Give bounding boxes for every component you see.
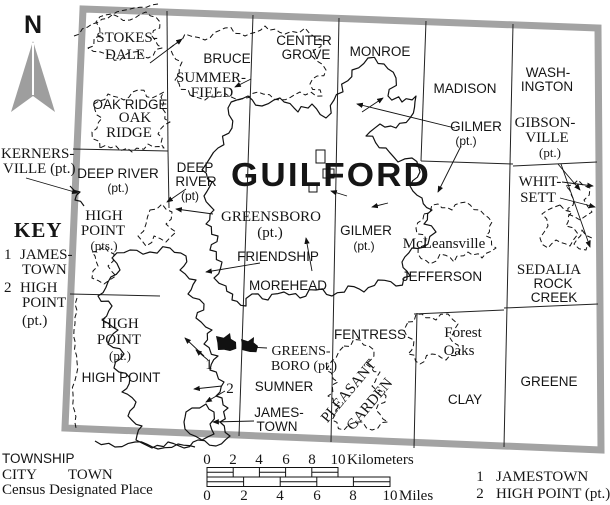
- label-kernersville-2: VILLE (pt.): [3, 161, 75, 177]
- mi-tick-6: 6: [313, 488, 321, 504]
- north-arrow-right-half: [33, 41, 55, 112]
- label-forest-oaks-2: Oaks: [444, 343, 475, 359]
- km-tick-4: 4: [255, 452, 263, 468]
- numbered-key-2-label: HIGH POINT (pt.): [496, 486, 610, 502]
- legend-symbol-types: TOWNSHIP CITY TOWN Census Designated Pla…: [2, 451, 153, 498]
- key-item1-line2: TOWN: [22, 262, 67, 278]
- label-stokesdale-2: DALE: [105, 47, 145, 63]
- label-whitsett-1: WHIT-: [519, 174, 562, 190]
- key-panel: KEY 1 JAMES- TOWN 2 HIGH POINT (pt.): [4, 218, 73, 329]
- label-deep-river-w-2: (pt.): [107, 181, 128, 195]
- label-summerfield-1: SUMMER-: [176, 70, 246, 86]
- label-marker-1: 1: [205, 357, 213, 373]
- label-friendship-township: FRIENDSHIP: [237, 249, 319, 264]
- label-deep-river-c-2: RIVER: [175, 174, 217, 189]
- key-item2-line1: HIGH: [20, 280, 58, 296]
- label-gilmer-c-1: GILMER: [340, 223, 392, 238]
- label-jamestown-township-2: TOWN: [257, 419, 298, 434]
- label-high-point-pt-2: POINT: [97, 332, 141, 348]
- label-gibsonville-2: VILLE: [525, 130, 568, 146]
- legend-town: TOWN: [68, 467, 113, 483]
- km-tick-0: 0: [203, 452, 211, 468]
- label-gilmer-ne-1: GILMER: [450, 119, 502, 134]
- label-gibsonville-3: (pt.): [539, 145, 561, 160]
- label-gilmer-c-2: (pt.): [353, 239, 374, 253]
- label-fentress-township: FENTRESS: [334, 327, 406, 342]
- north-arrow: N: [11, 11, 55, 112]
- county-name-watermark: GUILFORD: [231, 156, 431, 193]
- label-high-point-pts-1: HIGH: [85, 208, 123, 224]
- label-greensboro-small-2: BORO (pt.): [271, 359, 337, 374]
- label-high-point-pt-1: HIGH: [101, 316, 139, 332]
- numbered-key-1-label: JAMESTOWN: [496, 469, 588, 485]
- label-rock-creek-township-1: ROCK: [533, 276, 572, 291]
- label-madison-township: MADISON: [433, 81, 496, 96]
- label-clay-township: CLAY: [448, 392, 482, 407]
- label-deep-river-w-1: DEEP RIVER: [77, 166, 159, 181]
- label-deep-river-c-3: (pt): [181, 189, 199, 203]
- label-center-grove-township-1: CENTER: [276, 33, 332, 48]
- label-washington-township-1: WASH-: [526, 65, 571, 80]
- legend-cdp: Census Designated Place: [2, 482, 153, 498]
- mi-tick-0: 0: [203, 488, 211, 504]
- label-washington-township-2: INGTON: [521, 79, 573, 94]
- north-label: N: [24, 11, 42, 39]
- numbered-key: 1 JAMESTOWN 2 HIGH POINT (pt.): [476, 469, 610, 502]
- mi-tick-2: 2: [240, 488, 248, 504]
- label-oak-ridge-town-1: OAK: [119, 110, 152, 126]
- label-greene-township: GREENE: [520, 374, 577, 389]
- km-tick-10: 10: [331, 452, 346, 468]
- key-item2-line2: POINT: [22, 295, 66, 311]
- label-greensboro-small-1: GREENS-: [271, 344, 330, 359]
- label-whitsett-2: SETT: [520, 190, 556, 206]
- numbered-key-1-num: 1: [476, 469, 484, 485]
- label-center-grove-township-2: GROVE: [282, 47, 331, 62]
- label-greensboro-pt-2: (pt.): [257, 225, 282, 241]
- key-title: KEY: [14, 218, 63, 242]
- label-gilmer-ne-2: (pt.): [455, 134, 476, 148]
- label-morehead-township: MOREHEAD: [249, 278, 327, 293]
- label-jamestown-township-1: JAMES-: [254, 405, 304, 420]
- key-item2-line3: (pt.): [22, 313, 47, 329]
- km-tick-8: 8: [308, 452, 316, 468]
- key-item2-number: 2: [4, 280, 12, 296]
- label-monroe-township: MONROE: [350, 44, 411, 59]
- label-sedalia: SEDALIA: [517, 262, 581, 278]
- km-unit: Kilometers: [347, 452, 414, 468]
- legend-township: TOWNSHIP: [2, 451, 75, 466]
- scale-bar: 0 2 4 6 8 10 Kilometers 0 2 4 6 8 10 Mil…: [203, 452, 433, 504]
- kernersville-arrow: [26, 178, 78, 193]
- label-sumner-township: SUMNER: [255, 379, 314, 394]
- label-marker-2: 2: [226, 381, 234, 397]
- label-high-point-township: HIGH POINT: [82, 370, 161, 385]
- label-rock-creek-township-2: CREEK: [531, 290, 578, 305]
- label-kernersville-1: KERNERS-: [1, 146, 74, 162]
- label-greensboro-pt-1: GREENSBORO: [221, 209, 321, 225]
- mi-tick-10: 10: [383, 488, 398, 504]
- label-gibsonville-1: GIBSON-: [515, 115, 576, 131]
- numbered-key-2-num: 2: [476, 486, 484, 502]
- label-high-point-pts-2: POINT: [81, 223, 125, 239]
- mi-tick-8: 8: [349, 488, 357, 504]
- km-tick-2: 2: [229, 452, 237, 468]
- km-tick-6: 6: [282, 452, 290, 468]
- label-bruce-township: BRUCE: [203, 51, 250, 66]
- label-summerfield-2: FIELD: [191, 85, 234, 101]
- mi-tick-4: 4: [276, 488, 284, 504]
- label-jefferson-township: JEFFERSON: [402, 269, 482, 284]
- guilford-county-map: GUILFORD: [0, 0, 610, 505]
- label-high-point-pts-3: (pts.): [90, 238, 117, 253]
- key-item1-line1: JAMES-: [20, 247, 73, 263]
- label-mcleansville: McLeansville: [403, 236, 486, 252]
- legend-city: CITY: [2, 467, 37, 483]
- label-oak-ridge-town-2: RIDGE: [106, 125, 152, 141]
- label-stokesdale-1: STOKES-: [96, 30, 157, 46]
- mi-unit: Miles: [399, 488, 433, 504]
- label-deep-river-c-1: DEEP: [177, 160, 214, 175]
- label-forest-oaks-1: Forest: [444, 325, 482, 341]
- key-item1-number: 1: [4, 247, 12, 263]
- north-arrow-left-half: [11, 41, 33, 112]
- label-high-point-pt-3: (pt.): [109, 348, 131, 363]
